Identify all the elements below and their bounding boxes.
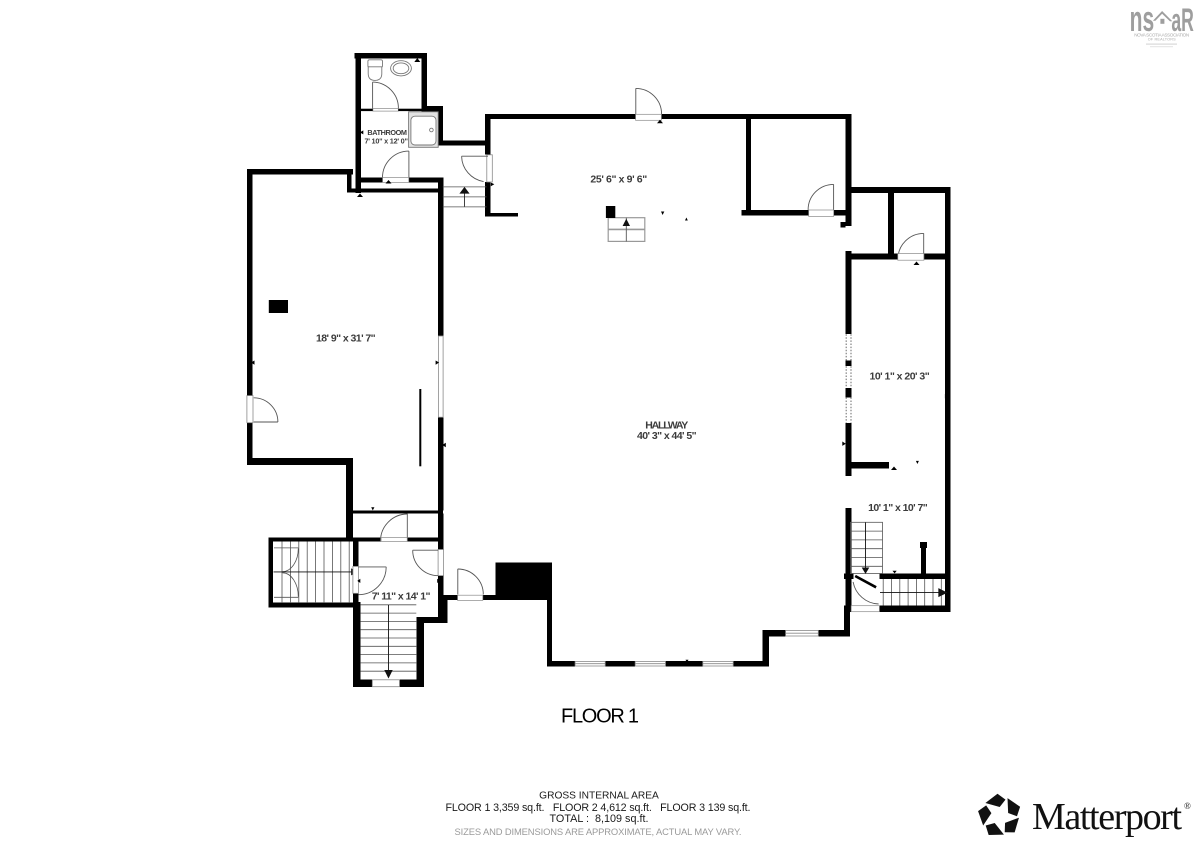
svg-text:18' 9" x 31' 7": 18' 9" x 31' 7" [316,333,376,345]
svg-text:25' 6" x 9' 6": 25' 6" x 9' 6" [590,173,647,185]
svg-text:40' 3" x 44' 5": 40' 3" x 44' 5" [637,430,697,442]
svg-text:FLOOR 1: FLOOR 1 [561,706,639,728]
svg-text:®: ® [1184,801,1191,811]
svg-text:FLOOR 1 3,359 sq.ft. FLOOR 2: FLOOR 1 3,359 sq.ft. FLOOR 2 4,612 sq.ft… [446,802,751,814]
svg-text:10' 1" x 20' 3": 10' 1" x 20' 3" [870,371,930,383]
svg-text:SIZES AND DIMENSIONS ARE APPRO: SIZES AND DIMENSIONS ARE APPROXIMATE, AC… [455,826,742,837]
svg-text:OF REALTORS: OF REALTORS [1148,37,1176,41]
svg-text:7' 10" x 12' 0": 7' 10" x 12' 0" [364,137,408,146]
svg-text:Matterport: Matterport [1032,796,1182,838]
svg-text:7' 11" x 14' 1": 7' 11" x 14' 1" [372,591,431,603]
svg-text:GROSS INTERNAL AREA: GROSS INTERNAL AREA [539,790,659,801]
svg-text:10' 1" x 10' 7": 10' 1" x 10' 7" [868,502,928,514]
svg-text:TOTAL : 8,109 sq.ft.: TOTAL : 8,109 sq.ft. [550,813,649,825]
